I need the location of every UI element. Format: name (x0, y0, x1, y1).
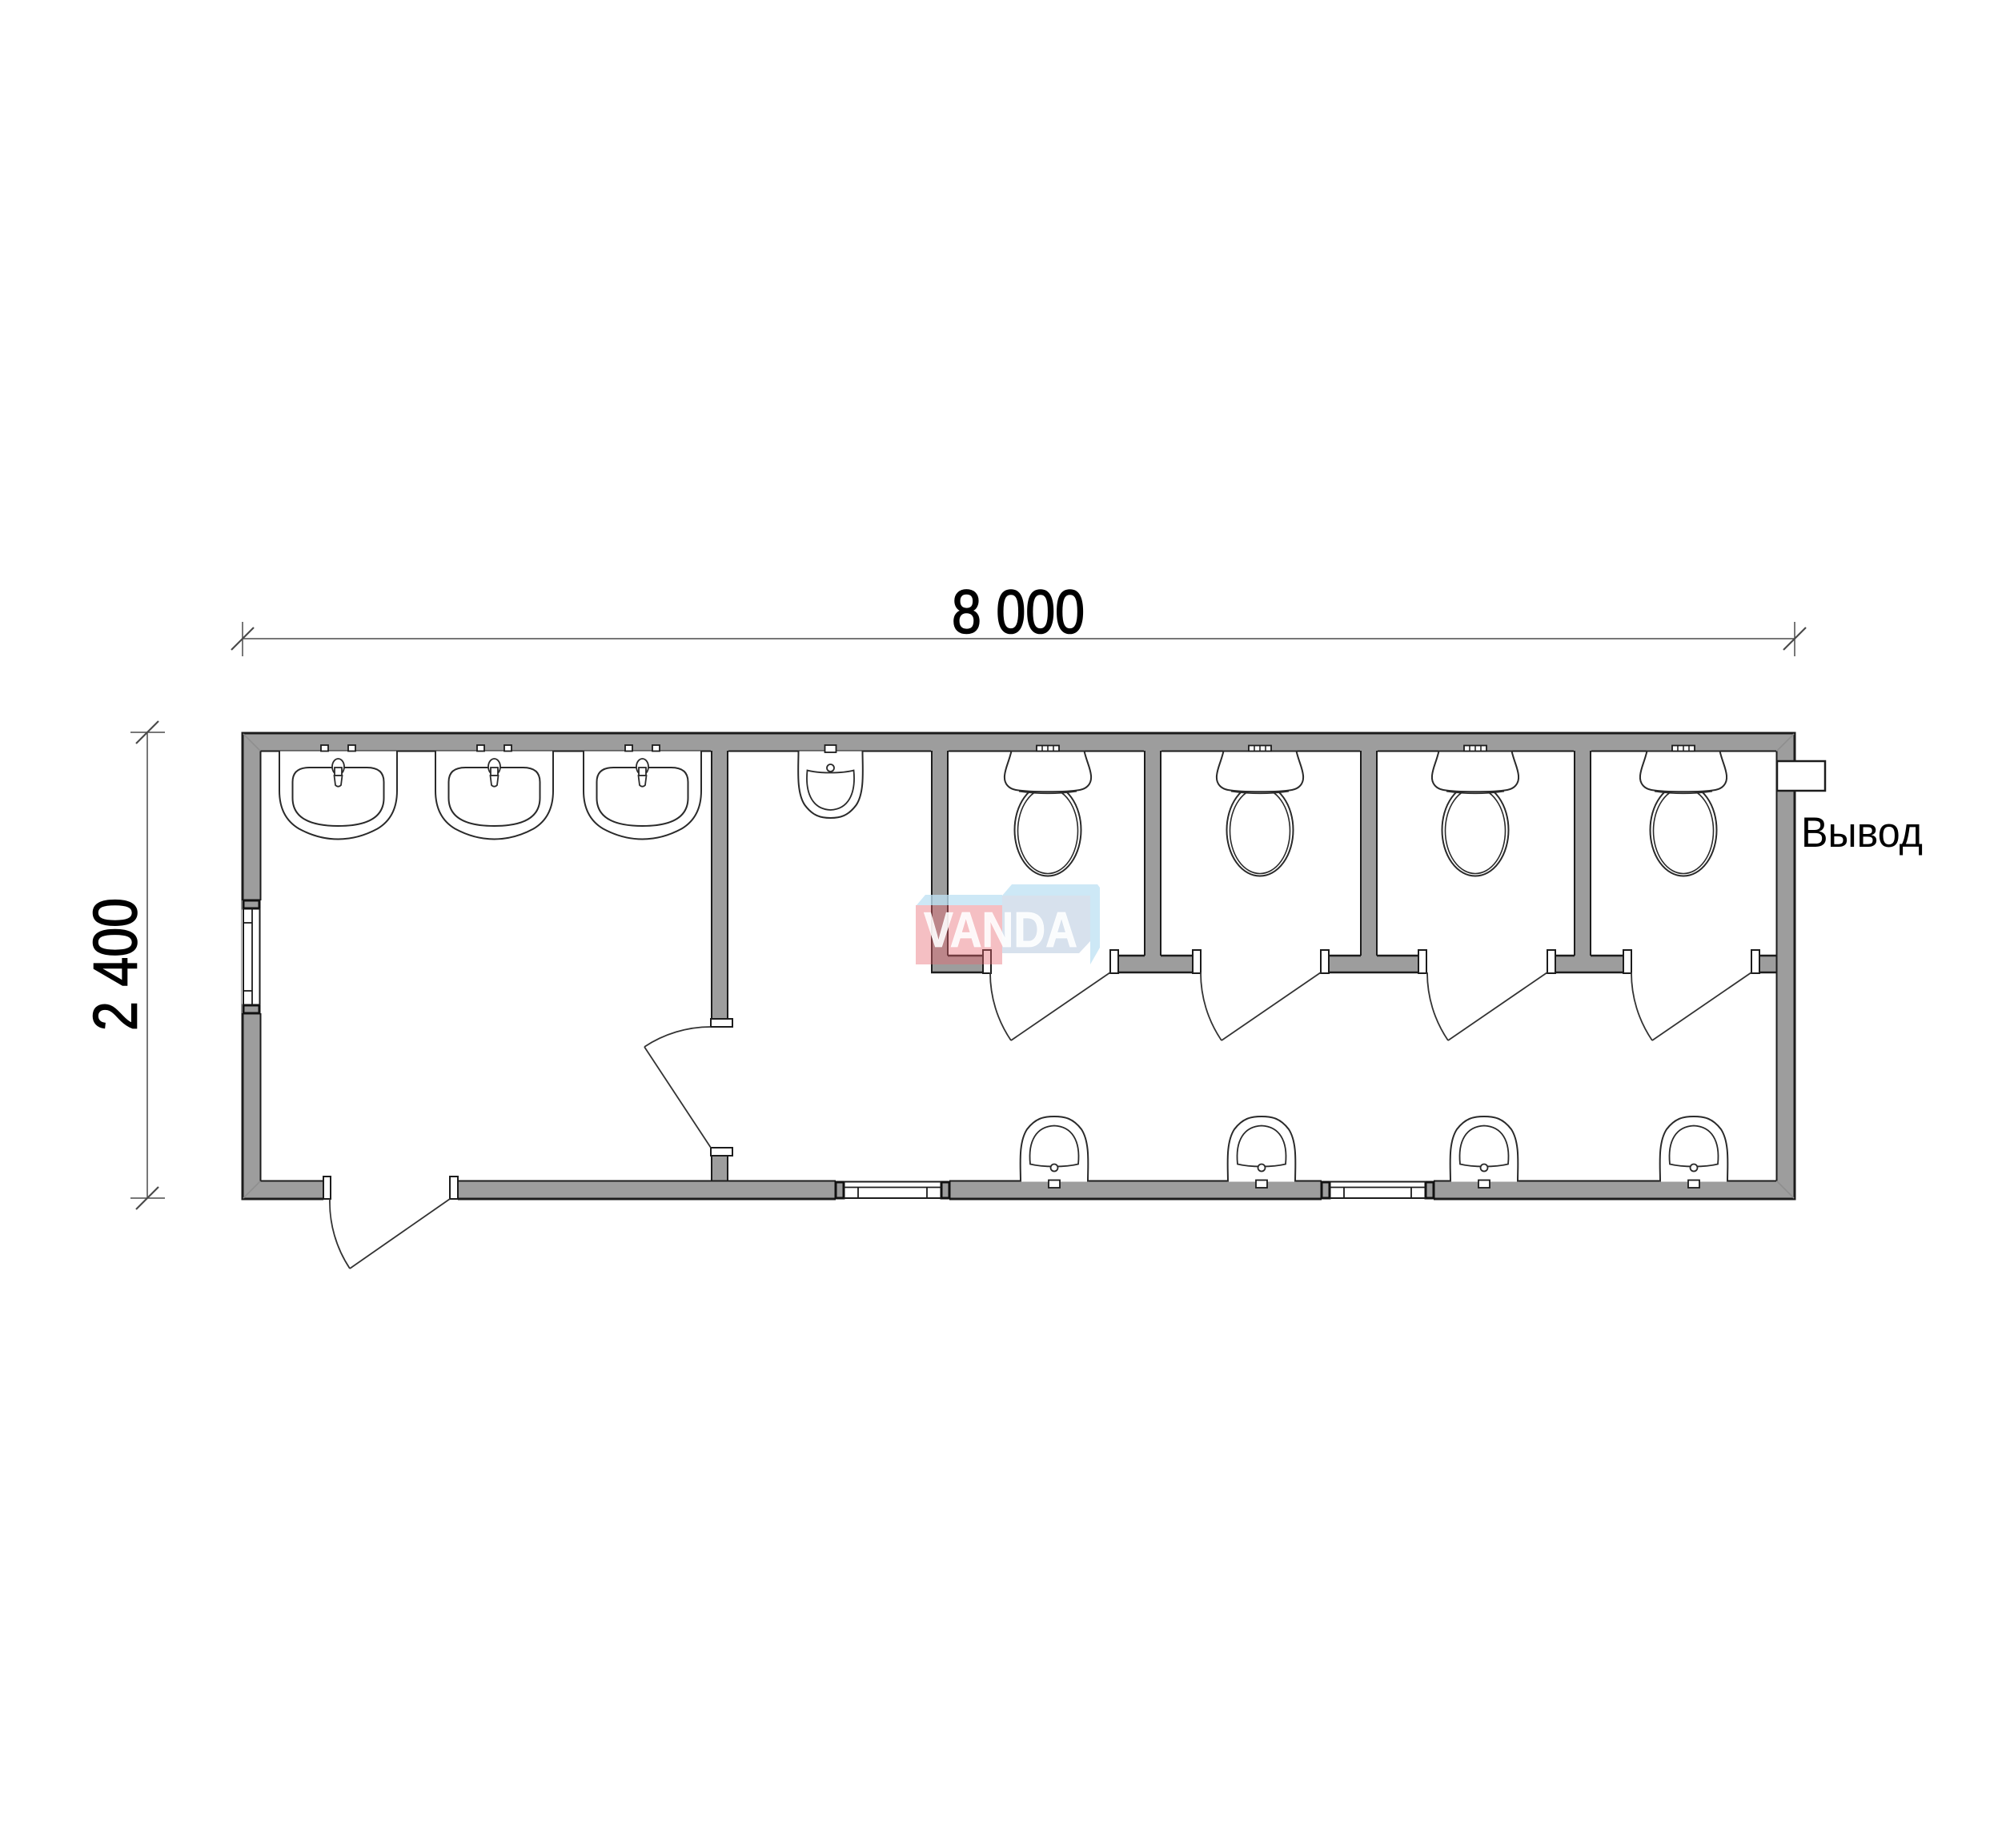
svg-text:Вывод: Вывод (1801, 809, 1923, 856)
svg-text:VANDA: VANDA (924, 903, 1077, 958)
svg-text:2 400: 2 400 (81, 898, 150, 1031)
svg-text:8 000: 8 000 (952, 578, 1085, 647)
